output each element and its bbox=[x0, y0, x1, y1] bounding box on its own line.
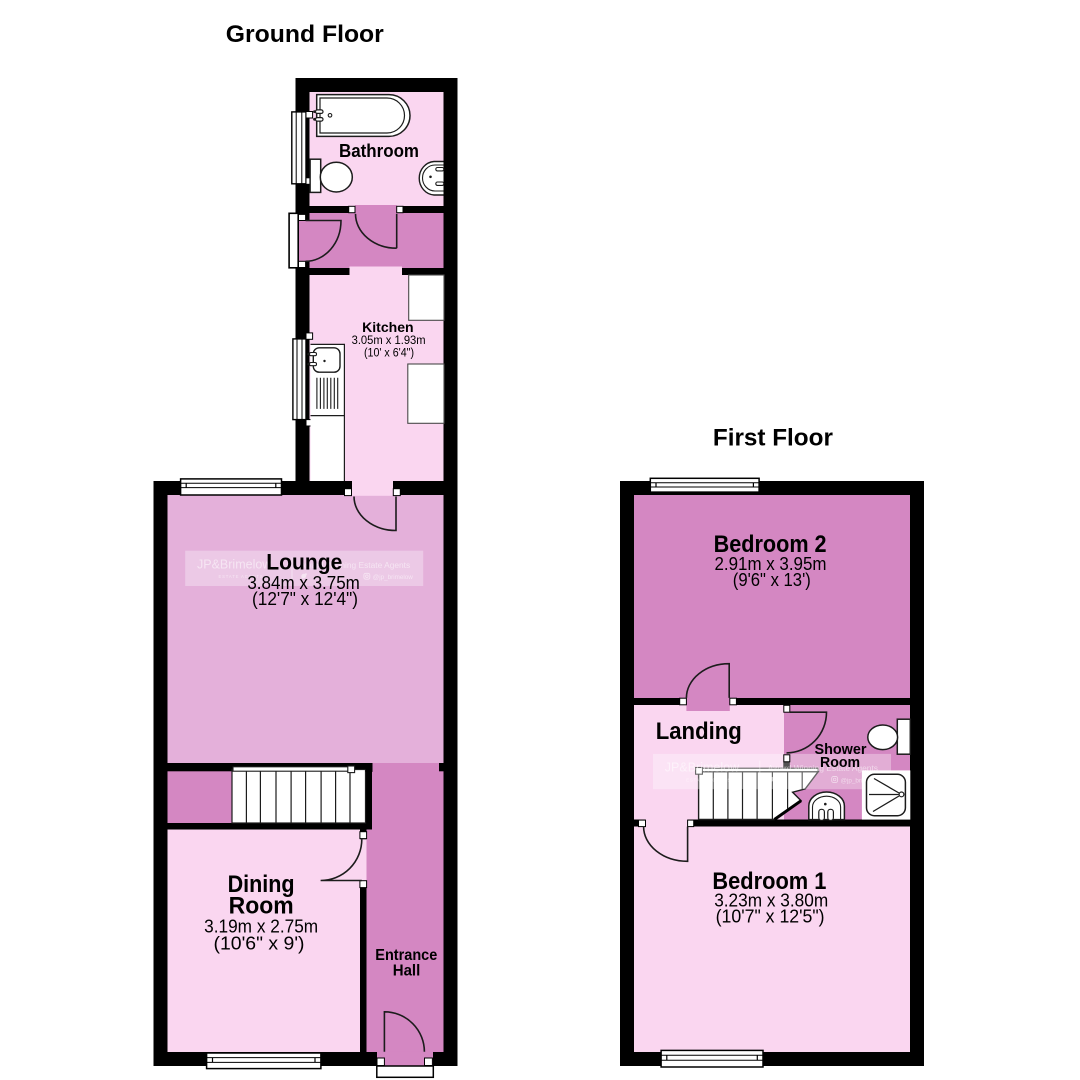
svg-text:(9'6" x 13'): (9'6" x 13') bbox=[733, 570, 811, 590]
svg-text:First Floor: First Floor bbox=[713, 425, 833, 452]
svg-text:Landing: Landing bbox=[656, 718, 742, 745]
svg-text:ESTATE AGENTS: ESTATE AGENTS bbox=[686, 777, 731, 782]
svg-text:Kitchen: Kitchen bbox=[362, 319, 414, 335]
svg-text:(10'6" x 9'): (10'6" x 9') bbox=[214, 934, 305, 954]
svg-text:Entrance: Entrance bbox=[375, 947, 437, 964]
svg-text:Ground Floor: Ground Floor bbox=[226, 21, 384, 48]
svg-text:JP&Brimelow: JP&Brimelow bbox=[665, 761, 740, 775]
svg-text:Hall: Hall bbox=[393, 963, 421, 980]
svg-text:Room: Room bbox=[820, 754, 860, 771]
svg-text:Lounge: Lounge bbox=[266, 550, 342, 575]
svg-text:3.05m x 1.93m: 3.05m x 1.93m bbox=[352, 335, 426, 347]
svg-text:(10'7" x 12'5"): (10'7" x 12'5") bbox=[716, 907, 825, 927]
svg-text:(10' x 6'4"): (10' x 6'4") bbox=[364, 347, 414, 359]
svg-text:Bathroom: Bathroom bbox=[339, 140, 419, 161]
svg-text:JP&Brimelow: JP&Brimelow bbox=[197, 558, 272, 572]
svg-text:@jp_brimelow: @jp_brimelow bbox=[373, 574, 413, 581]
svg-text:(12'7" x 12'4"): (12'7" x 12'4") bbox=[252, 589, 358, 609]
